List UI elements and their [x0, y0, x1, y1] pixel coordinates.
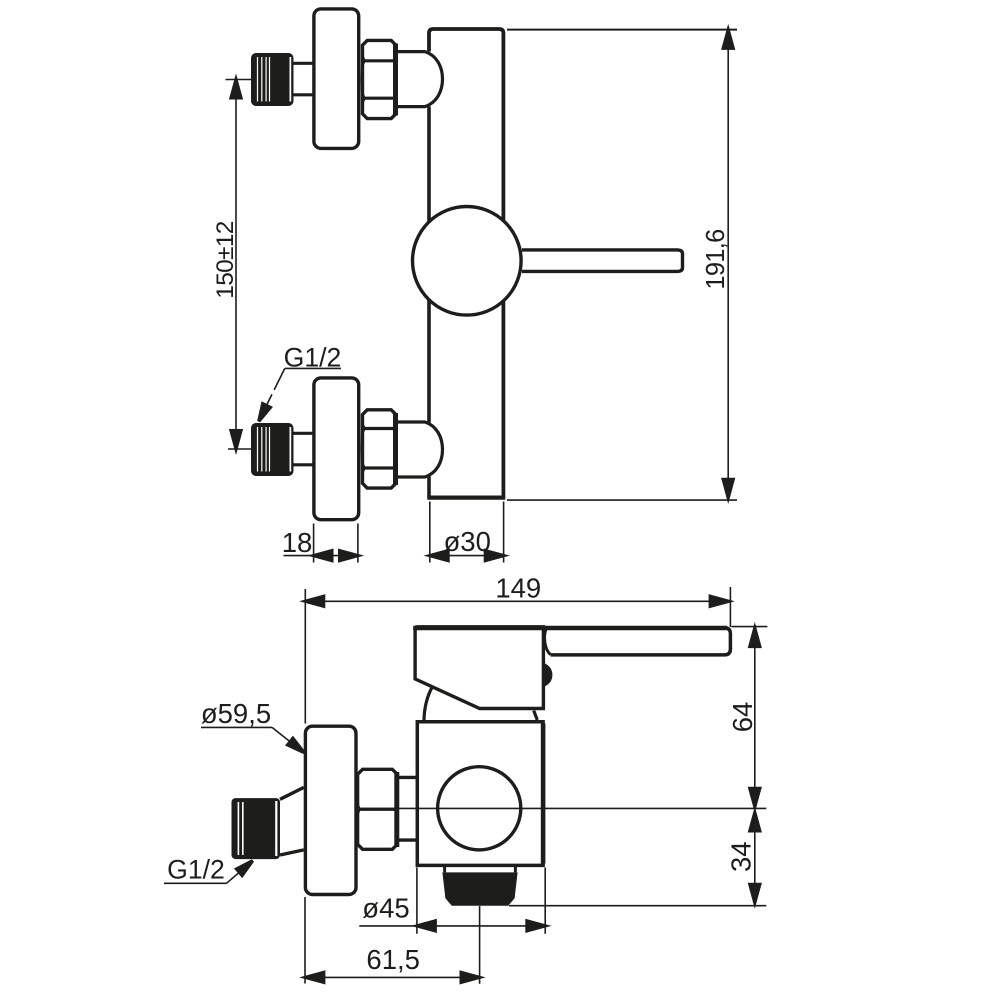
svg-text:150±12: 150±12: [212, 221, 239, 298]
svg-text:ø45: ø45: [362, 893, 409, 924]
svg-text:18: 18: [282, 527, 313, 558]
svg-text:34: 34: [726, 841, 757, 872]
svg-text:149: 149: [495, 572, 541, 603]
svg-text:61,5: 61,5: [366, 944, 420, 975]
svg-text:ø59,5: ø59,5: [201, 698, 271, 729]
svg-text:G1/2: G1/2: [167, 855, 225, 885]
svg-text:191,6: 191,6: [702, 229, 730, 290]
svg-text:64: 64: [727, 702, 758, 733]
svg-text:G1/2: G1/2: [284, 342, 342, 372]
svg-text:ø30: ø30: [444, 526, 491, 557]
